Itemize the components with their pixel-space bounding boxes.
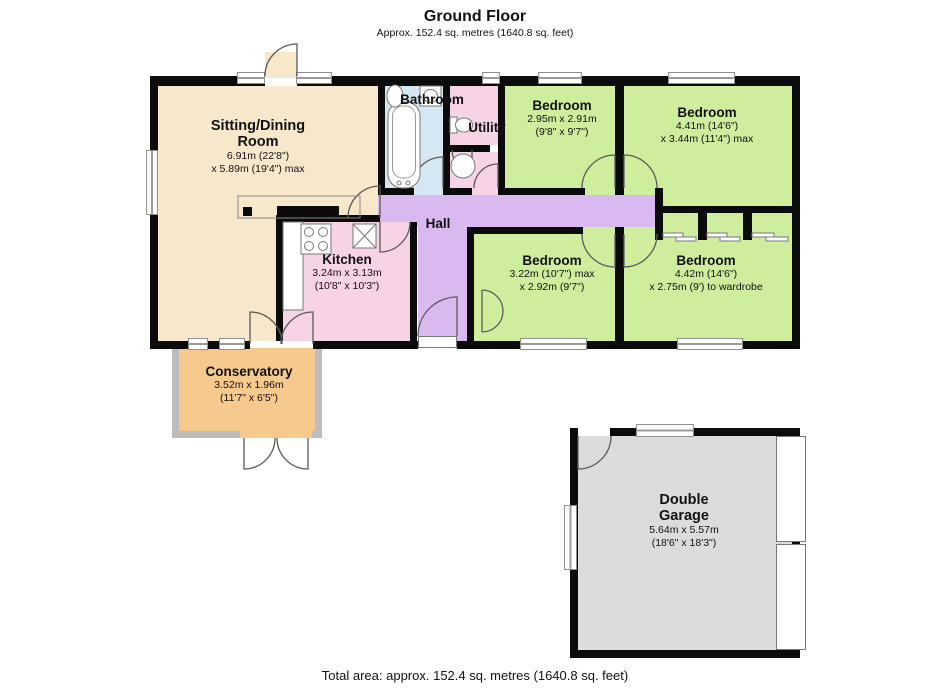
conservatory-exit-door-arc bbox=[244, 438, 275, 469]
garage-door bbox=[776, 436, 806, 542]
wall bbox=[655, 188, 663, 240]
wall bbox=[792, 76, 800, 349]
wall bbox=[474, 227, 583, 234]
total-area-text: Total area: approx. 152.4 sq. metres (16… bbox=[0, 668, 950, 683]
room-bedroom2 bbox=[624, 86, 793, 206]
wall bbox=[378, 86, 385, 193]
room-label-sitting-dining: Sitting/Dining Room 6.91m (22'8") x 5.89… bbox=[211, 118, 305, 176]
wall bbox=[378, 188, 414, 195]
wall bbox=[498, 188, 585, 195]
wall bbox=[410, 222, 417, 341]
back-door bbox=[418, 336, 457, 348]
window bbox=[520, 338, 587, 350]
wall bbox=[450, 145, 490, 152]
wall bbox=[743, 213, 752, 240]
window bbox=[237, 72, 265, 84]
room-label-kitchen: Kitchen 3.24m x 3.13m (10'8" x 10'3") bbox=[312, 252, 381, 293]
window bbox=[146, 150, 158, 215]
wall bbox=[615, 86, 624, 195]
wall bbox=[657, 206, 793, 213]
wall bbox=[615, 227, 624, 341]
room-label-bathroom: Bathroom bbox=[400, 92, 464, 107]
room-label-bedroom1: Bedroom 2.95m x 2.91m (9'8" x 9'7") bbox=[527, 98, 596, 139]
wall bbox=[313, 341, 418, 349]
floorplan-page: Ground Floor Approx. 152.4 sq. metres (1… bbox=[0, 0, 950, 690]
window bbox=[677, 338, 743, 350]
room-label-bedroom4: Bedroom 4.42m (14'6") x 2.75m (9') to wa… bbox=[649, 253, 762, 294]
window bbox=[482, 72, 500, 84]
wall bbox=[467, 227, 474, 341]
conservatory-door-gap bbox=[240, 429, 312, 438]
wall bbox=[276, 215, 283, 341]
room-label-bedroom3: Bedroom 3.22m (10'7") max x 2.92m (9'7") bbox=[509, 253, 594, 294]
room-label-conservatory: Conservatory 3.52m x 1.96m (11'7" x 6'5"… bbox=[205, 364, 292, 405]
wall bbox=[457, 341, 800, 349]
window bbox=[538, 72, 582, 84]
garage-window bbox=[564, 505, 577, 570]
room-label-bedroom2: Bedroom 4.41m (14'6") x 3.44m (11'4") ma… bbox=[661, 105, 754, 146]
garage-door bbox=[776, 544, 806, 650]
hall-strip bbox=[418, 227, 467, 341]
hall-corridor bbox=[378, 195, 657, 227]
chimney-breast bbox=[277, 206, 339, 222]
window bbox=[219, 338, 245, 350]
window bbox=[188, 338, 208, 350]
wall bbox=[698, 213, 707, 240]
window bbox=[668, 72, 735, 84]
room-label-hall: Hall bbox=[426, 216, 451, 231]
window bbox=[296, 72, 332, 84]
page-title: Ground Floor bbox=[0, 8, 950, 26]
room-label-utility: Utility bbox=[468, 120, 506, 135]
page-subtitle: Approx. 152.4 sq. metres (1640.8 sq. fee… bbox=[0, 27, 950, 39]
bedroom4-wardrobes bbox=[657, 210, 793, 240]
wall bbox=[570, 650, 800, 658]
conservatory-exit-door-arc bbox=[277, 438, 308, 469]
front-door-recess bbox=[265, 52, 297, 78]
wall bbox=[498, 86, 505, 195]
room-label-garage: Double Garage 5.64m x 5.57m (18'6" x 18'… bbox=[649, 492, 718, 550]
garage-window bbox=[636, 424, 694, 437]
